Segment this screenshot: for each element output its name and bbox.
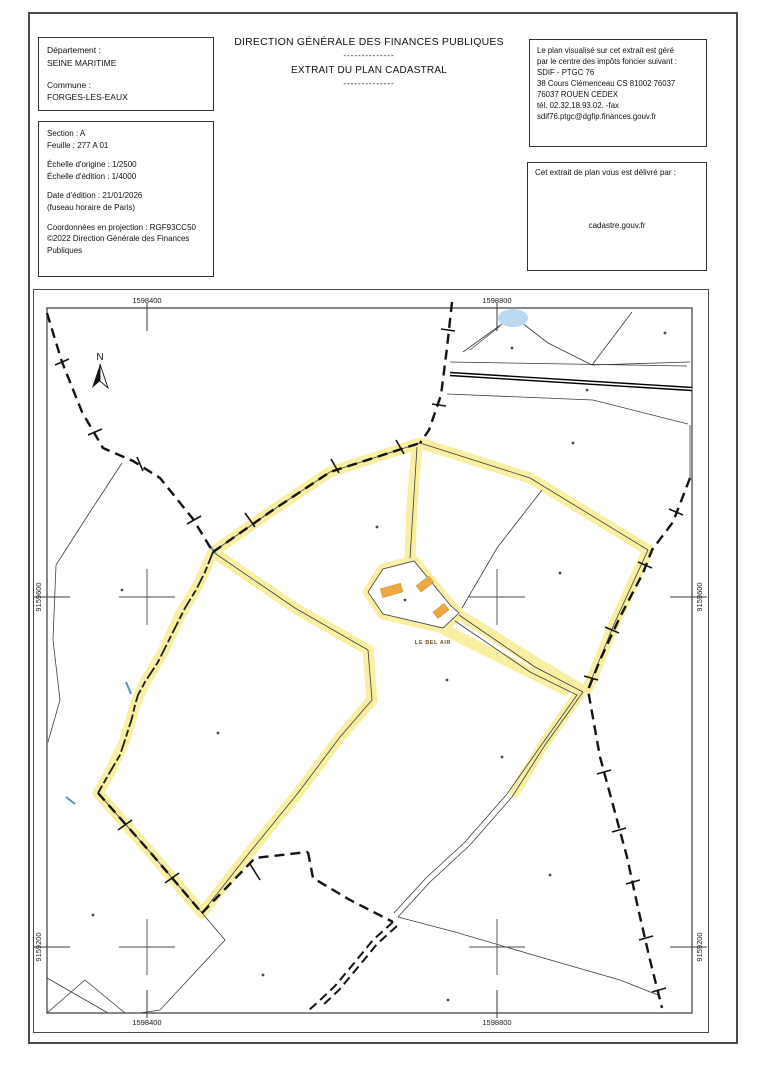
coord-top-right: 1598800 [482, 296, 511, 305]
coord-top-left: 1598400 [132, 296, 161, 305]
coord-bottom-left: 1598400 [132, 1018, 161, 1027]
coord-right-upper: 9159600 [695, 582, 704, 611]
coord-left-lower: 9159200 [34, 932, 43, 961]
cadastral-map: 1598400 1598800 1598400 1598800 9159600 … [0, 0, 759, 1080]
cadastral-extract-page: { "header": { "commune_box": { "departem… [0, 0, 759, 1080]
coord-left-upper: 9159600 [34, 582, 43, 611]
north-label: N [96, 352, 103, 363]
coord-bottom-right: 1598800 [482, 1018, 511, 1027]
lieu-dit-label: LE BEL AIR [415, 640, 451, 646]
pond-water [498, 309, 528, 327]
coord-right-lower: 9159200 [695, 932, 704, 961]
